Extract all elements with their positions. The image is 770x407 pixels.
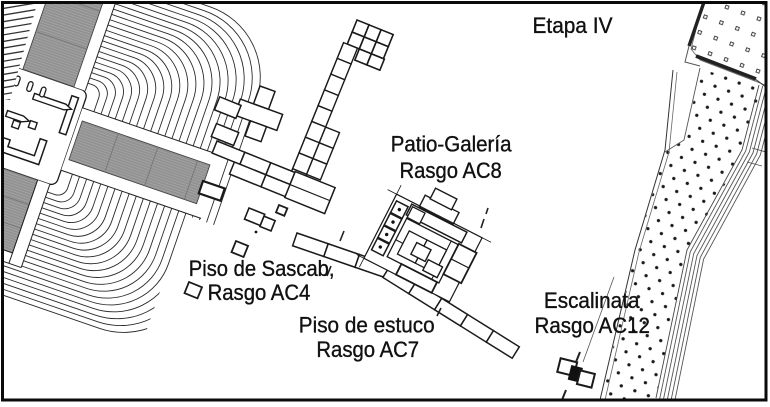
svg-text:Patio-Galería: Patio-Galería <box>391 132 513 157</box>
svg-text:Piso de Sascab,: Piso de Sascab, <box>189 256 335 281</box>
svg-text:Etapa IV: Etapa IV <box>533 13 613 38</box>
svg-text:Escalinata: Escalinata <box>544 288 640 313</box>
svg-text:Rasgo AC4: Rasgo AC4 <box>208 280 311 305</box>
svg-text:Rasgo AC12: Rasgo AC12 <box>535 313 650 338</box>
svg-text:Piso de estuco: Piso de estuco <box>299 313 435 338</box>
svg-text:Rasgo AC7: Rasgo AC7 <box>316 337 419 362</box>
svg-text:Rasgo AC8: Rasgo AC8 <box>400 158 502 183</box>
